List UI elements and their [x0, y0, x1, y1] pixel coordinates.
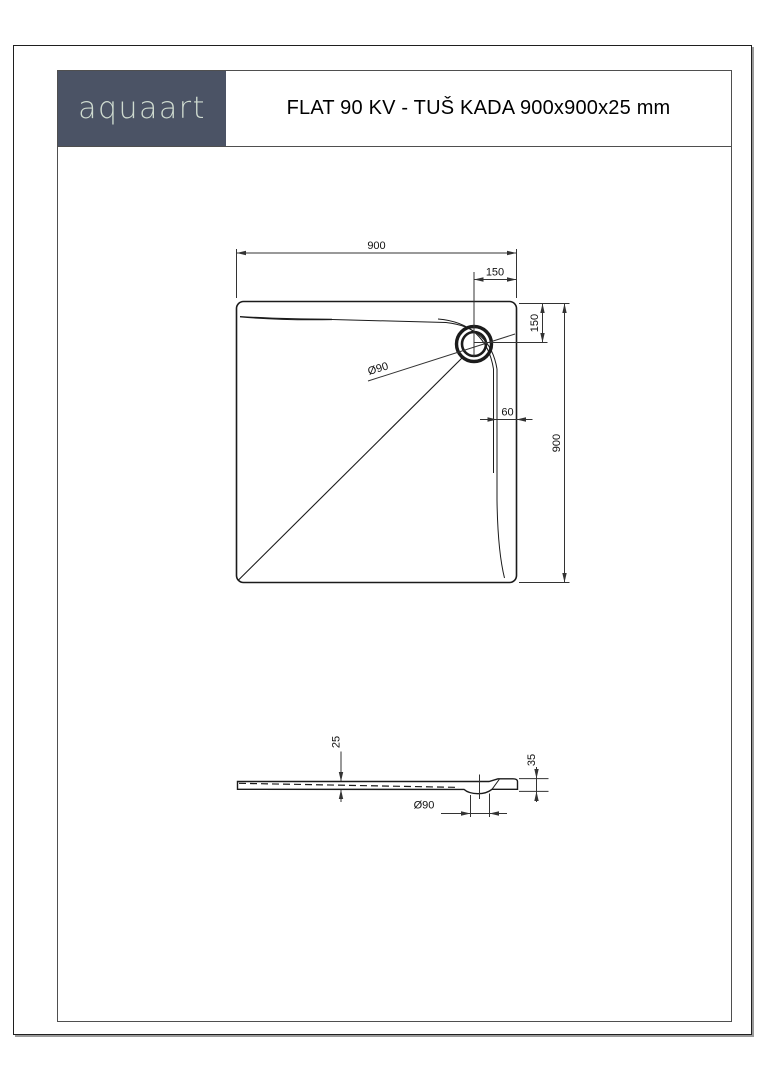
- datasheet-page: { "header": { "logo_text": "aquaart", "t…: [0, 0, 768, 1086]
- brand-logo-box: aquaart: [58, 71, 226, 146]
- title-band: FLAT 90 KV - TUŠ KADA 900x900x25 mm: [226, 71, 731, 146]
- drawing-frame: aquaart FLAT 90 KV - TUŠ KADA 900x900x25…: [57, 70, 732, 1022]
- product-title: FLAT 90 KV - TUŠ KADA 900x900x25 mm: [287, 97, 671, 120]
- title-block: aquaart FLAT 90 KV - TUŠ KADA 900x900x25…: [58, 71, 731, 147]
- brand-logo-text: aquaart: [78, 94, 206, 124]
